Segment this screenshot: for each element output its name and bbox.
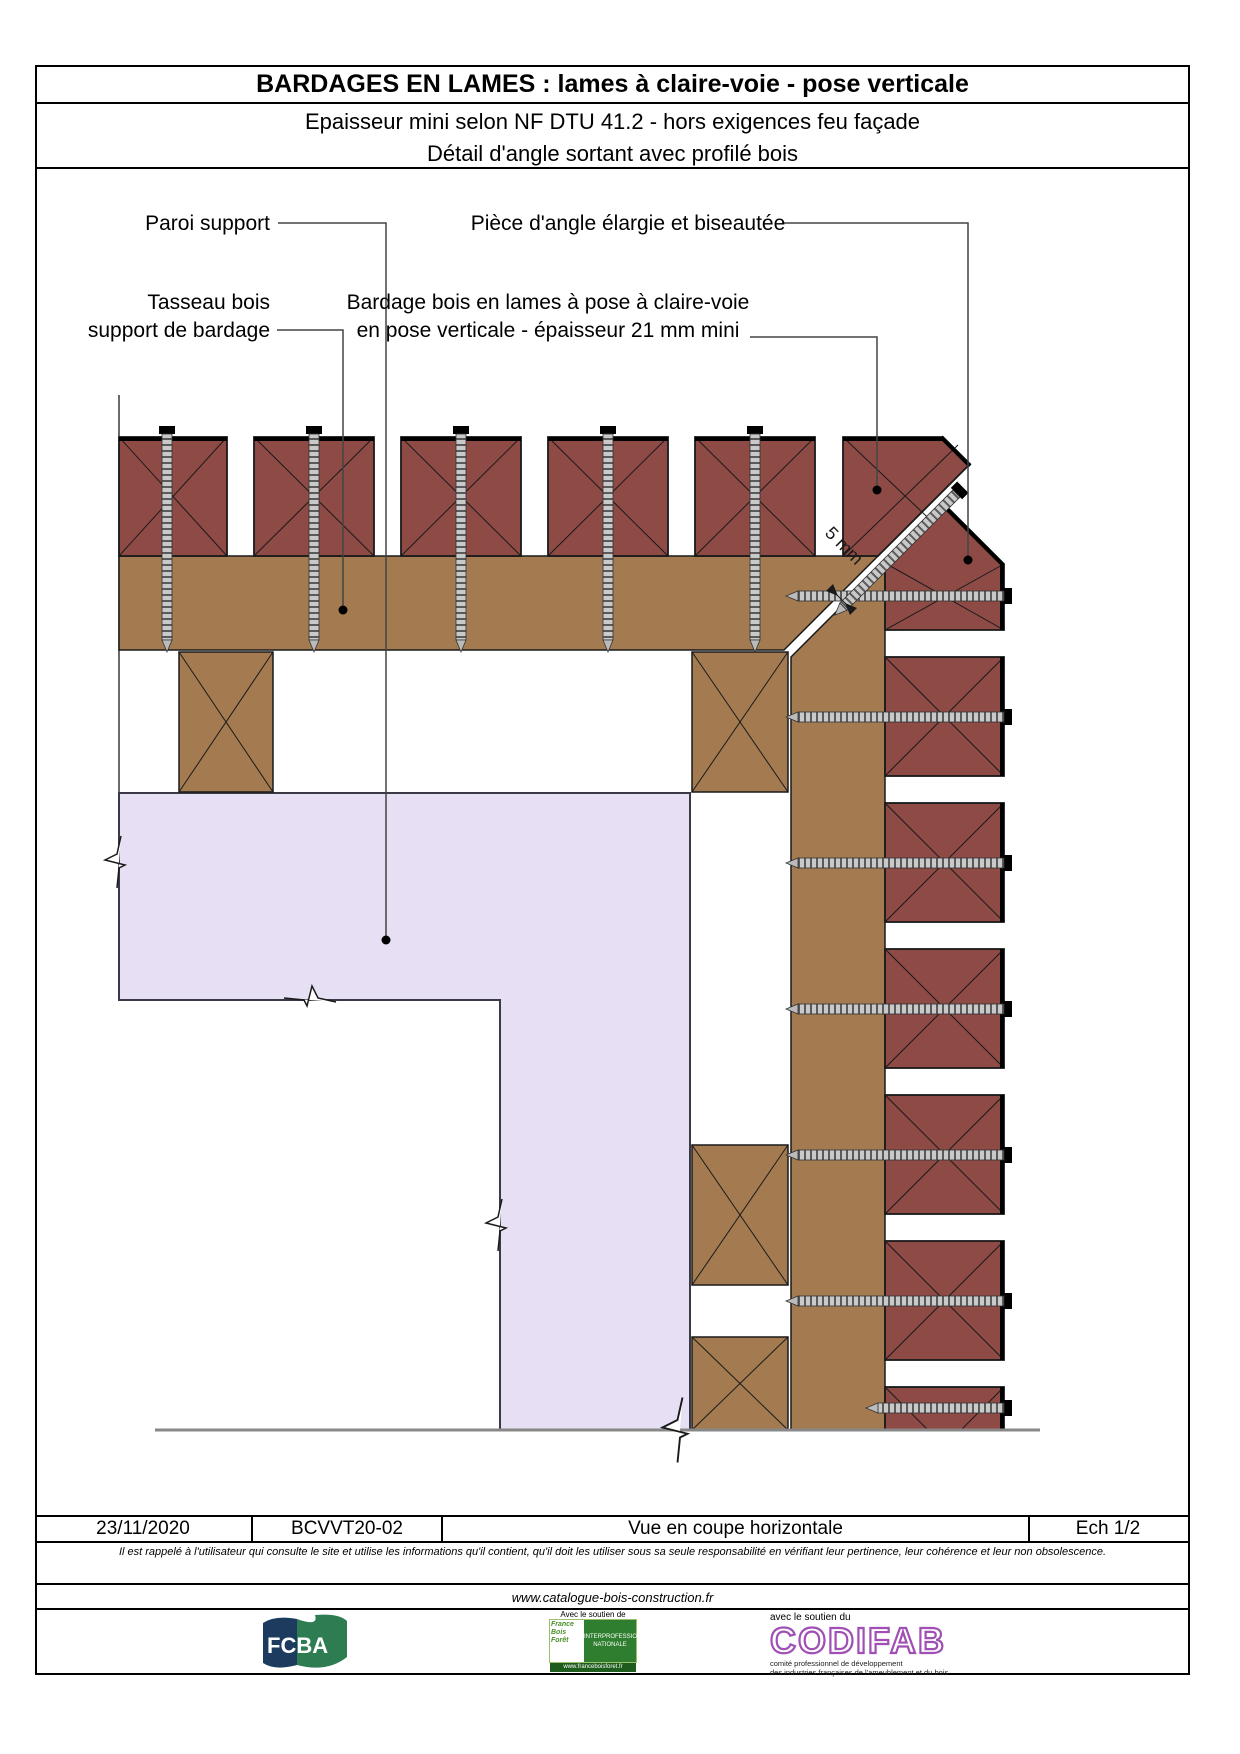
disclaimer-text: Il est rappelé à l'utilisateur qui consu… [37,1546,1188,1558]
fbf-name-2: Bois [551,1629,583,1637]
fbf-name-3: Forêt [551,1637,583,1645]
label-piece-angle: Pièce d'angle élargie et biseautée [471,212,786,235]
footer-reference: BCVVT20-02 [253,1517,443,1541]
support-wall [119,793,690,1430]
label-bardage-line1: Bardage bois en lames à pose à claire-vo… [347,291,750,314]
fbf-inter-1: INTERPROFESSION [584,1633,636,1641]
label-tasseau-line1: Tasseau bois [147,291,270,314]
footer-table: 23/11/2020 BCVVT20-02 Vue en coupe horiz… [35,1515,1190,1543]
footer-date: 23/11/2020 [35,1517,253,1541]
right-cladding-boards [885,657,1004,1430]
fcba-logo: FCBA [257,1613,353,1673]
fbf-logo: Avec le soutien de France Bois Forêt INT… [547,1610,639,1674]
fcba-logo-text: FCBA [267,1633,328,1658]
footer-view-title: Vue en coupe horizontale [443,1517,1030,1541]
batten-band-left [119,556,878,650]
fbf-support-text: Avec le soutien de [547,1610,639,1619]
label-paroi-support: Paroi support [145,212,270,235]
label-tasseau-line2: support de bardage [88,319,270,342]
website-link[interactable]: www.catalogue-bois-construction.fr [35,1583,1190,1610]
document-page: BARDAGES EN LAMES : lames à claire-voie … [0,0,1240,1754]
footer-scale: Ech 1/2 [1030,1517,1186,1541]
technical-drawing: 5 mm Paroi support Pièce d'angle él [0,0,1240,1754]
logo-band: FCBA Avec le soutien de France Bois Forê… [35,1610,1190,1675]
codifab-subtext-2: des industries françaises de l'ameubleme… [770,1668,1100,1677]
counter-batten-blocks [179,652,788,1430]
codifab-logo-text: CODIFAB [770,1623,1100,1659]
fbf-inter-2: NATIONALE [584,1641,636,1649]
fbf-url: www.franceboisforet.fr [550,1663,636,1672]
fbf-name-1: France [551,1621,583,1629]
label-bardage-line2: en pose verticale - épaisseur 21 mm mini [357,319,740,342]
codifab-logo: avec le soutien du CODIFAB comité profes… [770,1612,1100,1677]
